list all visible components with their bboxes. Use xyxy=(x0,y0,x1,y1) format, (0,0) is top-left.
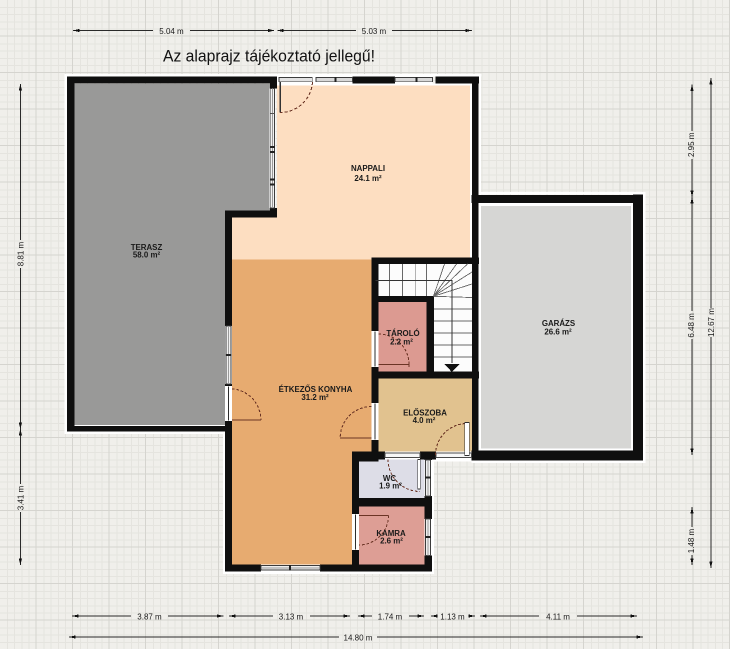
svg-text:NAPPALI: NAPPALI xyxy=(351,164,385,173)
svg-text:Az alaprajz tájékoztató jelleg: Az alaprajz tájékoztató jellegű! xyxy=(163,47,375,66)
svg-text:4.0 m²: 4.0 m² xyxy=(413,416,436,425)
svg-text:3.87 m: 3.87 m xyxy=(137,613,162,622)
svg-text:2.6 m²: 2.6 m² xyxy=(380,537,403,546)
svg-text:1.74 m: 1.74 m xyxy=(378,613,403,622)
svg-text:8.81 m: 8.81 m xyxy=(17,241,26,266)
svg-text:5.04 m: 5.04 m xyxy=(159,27,184,36)
svg-text:2.2 m²: 2.2 m² xyxy=(390,338,413,347)
svg-text:3.13 m: 3.13 m xyxy=(279,613,304,622)
svg-text:12.67 m: 12.67 m xyxy=(707,308,716,337)
svg-text:3.41 m: 3.41 m xyxy=(17,485,26,510)
svg-text:24.1 m²: 24.1 m² xyxy=(354,174,382,183)
svg-text:6.48 m: 6.48 m xyxy=(687,313,696,338)
svg-text:5.03 m: 5.03 m xyxy=(362,27,387,36)
svg-text:58.0 m²: 58.0 m² xyxy=(133,251,161,260)
svg-text:2.95 m: 2.95 m xyxy=(687,132,696,157)
svg-text:26.6 m²: 26.6 m² xyxy=(544,328,572,337)
svg-text:4.11 m: 4.11 m xyxy=(546,613,570,622)
svg-text:1.48 m: 1.48 m xyxy=(687,528,696,553)
svg-text:1.13 m: 1.13 m xyxy=(440,613,465,622)
svg-text:14.80 m: 14.80 m xyxy=(344,634,373,643)
svg-text:1.9 m²: 1.9 m² xyxy=(379,482,402,491)
svg-text:31.2 m²: 31.2 m² xyxy=(301,393,329,402)
